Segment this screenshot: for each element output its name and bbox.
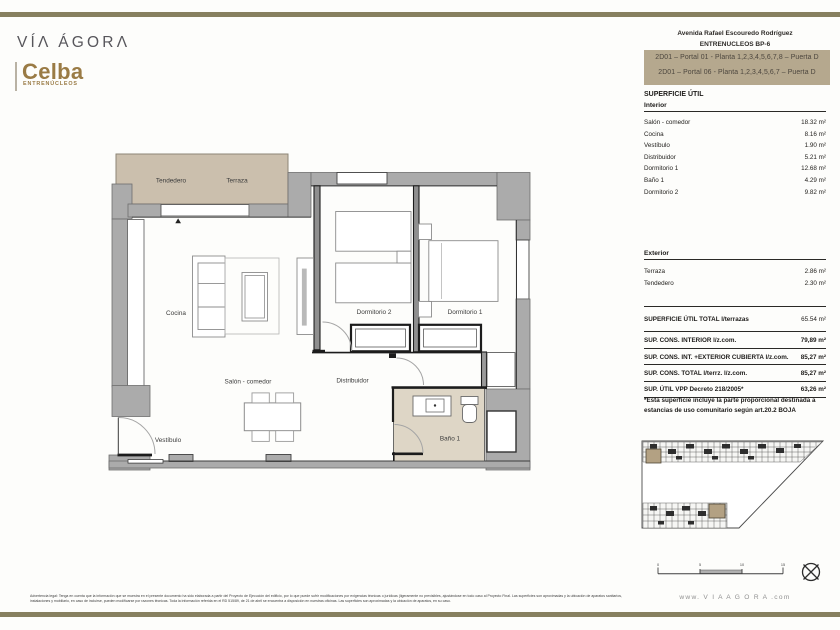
svg-text:Distribuidor: Distribuidor (336, 378, 369, 385)
svg-text:Dormitorio 1: Dormitorio 1 (448, 309, 483, 316)
svg-text:Tendedero: Tendedero (156, 178, 187, 185)
svg-text:0: 0 (657, 563, 659, 567)
svg-text:Baño 1: Baño 1 (440, 436, 461, 443)
svg-text:10: 10 (740, 563, 744, 567)
svg-text:Terraza: Terraza (226, 178, 248, 185)
svg-text:5: 5 (699, 563, 701, 567)
svg-text:Cocina: Cocina (166, 310, 186, 317)
svg-text:Salón - comedor: Salón - comedor (225, 379, 273, 386)
svg-text:Dormitorio 2: Dormitorio 2 (357, 309, 392, 316)
svg-text:15: 15 (781, 563, 785, 567)
svg-text:Vestíbulo: Vestíbulo (155, 437, 182, 444)
